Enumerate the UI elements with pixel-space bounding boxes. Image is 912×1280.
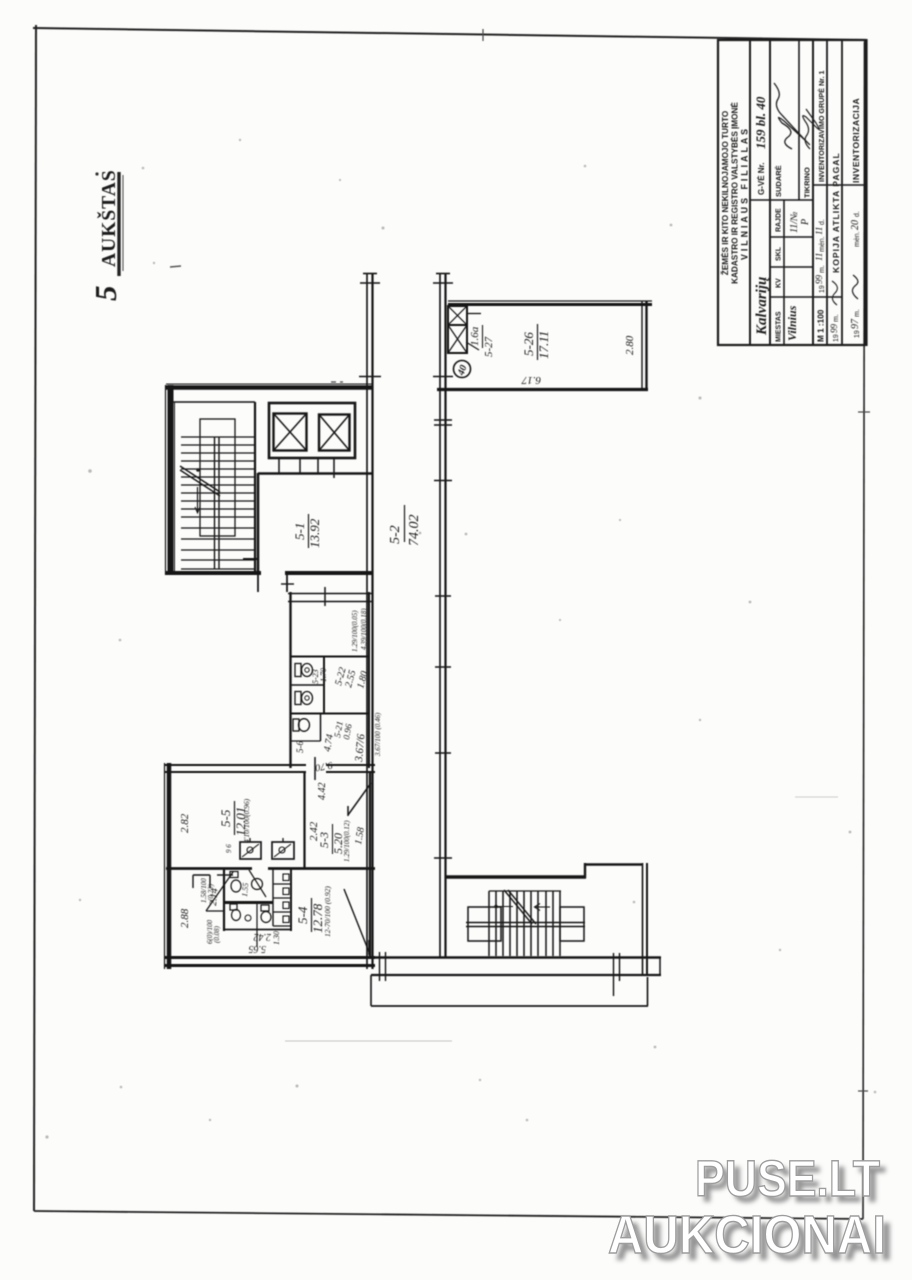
svg-text:5-3: 5-3 bbox=[317, 832, 331, 848]
svg-text:1.70: 1.70 bbox=[319, 668, 328, 682]
svg-text:4.39/100(0.18): 4.39/100(0.18) bbox=[360, 608, 368, 650]
svg-text:5-5: 5-5 bbox=[218, 809, 233, 827]
svg-text:1.55: 1.55 bbox=[240, 882, 250, 897]
svg-text:ŽEMĖS IR KITO NEKILNOJAMOJO TU: ŽEMĖS IR KITO NEKILNOJAMOJO TURTO bbox=[719, 110, 730, 275]
svg-text:2.88: 2.88 bbox=[179, 908, 191, 928]
svg-text:9 6: 9 6 bbox=[225, 844, 233, 853]
svg-text:2.42: 2.42 bbox=[254, 931, 272, 942]
svg-text:11: 11 bbox=[814, 227, 824, 235]
svg-text:d.: d. bbox=[854, 211, 861, 217]
svg-text:17.11: 17.11 bbox=[536, 331, 551, 359]
svg-text:5.65: 5.65 bbox=[249, 943, 267, 954]
svg-text:2.82: 2.82 bbox=[179, 813, 191, 833]
svg-text:KV: KV bbox=[776, 278, 783, 288]
svg-text:19: 19 bbox=[854, 330, 861, 338]
svg-text:1.30: 1.30 bbox=[272, 931, 281, 945]
svg-text:mėn.: mėn. bbox=[819, 236, 826, 252]
svg-text:SKL: SKL bbox=[776, 246, 783, 261]
svg-text:2.14: 2.14 bbox=[208, 888, 220, 906]
svg-text:KADASTRO IR REGISTRO VALSTYBĖS: KADASTRO IR REGISTRO VALSTYBĖS ĮMONĖ bbox=[730, 102, 740, 284]
svg-text:VILNIAUS FILIALAS: VILNIAUS FILIALAS bbox=[740, 126, 750, 260]
svg-text:INVENTORIZAVIMO GRUPĖ Nr. 1: INVENTORIZAVIMO GRUPĖ Nr. 1 bbox=[817, 70, 826, 182]
svg-text:5-27: 5-27 bbox=[483, 336, 495, 357]
svg-text:2.80: 2.80 bbox=[624, 335, 636, 355]
svg-text:1.29/100(0.12): 1.29/100(0.12) bbox=[343, 820, 351, 862]
svg-text:P: P bbox=[800, 219, 811, 226]
svg-text:m.: m. bbox=[833, 314, 840, 322]
svg-text:TIKRINO: TIKRINO bbox=[803, 167, 812, 198]
svg-text:4'10/100(0.96): 4'10/100(0.96) bbox=[242, 798, 251, 843]
svg-text:4.42: 4.42 bbox=[317, 783, 328, 801]
svg-text:5-1: 5-1 bbox=[292, 523, 307, 540]
svg-text:5-4: 5-4 bbox=[295, 906, 310, 924]
svg-text:5-2: 5-2 bbox=[388, 525, 403, 544]
svg-text:1.29/100(0.05): 1.29/100(0.05) bbox=[351, 610, 359, 652]
svg-text:5-26: 5-26 bbox=[521, 332, 536, 356]
svg-text:m.: m. bbox=[819, 265, 826, 273]
svg-text:3.67/6: 3.67/6 bbox=[353, 733, 368, 763]
svg-text:AUKŠTAS: AUKŠTAS bbox=[98, 169, 120, 267]
svg-text:5: 5 bbox=[88, 286, 123, 302]
svg-text:d.: d. bbox=[819, 219, 826, 225]
svg-text:Vilnius: Vilnius bbox=[785, 305, 799, 341]
svg-text:(0.08): (0.08) bbox=[213, 925, 221, 943]
svg-text:20: 20 bbox=[850, 220, 861, 230]
svg-text:RAJDE: RAJDE bbox=[776, 208, 783, 232]
svg-text:INVENTORIZACIJA: INVENTORIZACIJA bbox=[851, 98, 861, 183]
svg-text:Kalvarijų: Kalvarijų bbox=[754, 277, 770, 336]
svg-text:AUKCIONAI: AUKCIONAI bbox=[608, 1205, 886, 1265]
svg-text:3.67/100 (0.46): 3.67/100 (0.46) bbox=[374, 712, 382, 757]
svg-text:M 1 :100: M 1 :100 bbox=[817, 309, 826, 342]
svg-text:74.02: 74.02 bbox=[407, 515, 422, 547]
svg-text:m.: m. bbox=[854, 309, 861, 317]
svg-text:11: 11 bbox=[814, 253, 824, 261]
svg-text:SUDARĖ: SUDARĖ bbox=[774, 165, 783, 197]
svg-text:12-70/100 (0.92): 12-70/100 (0.92) bbox=[323, 886, 332, 937]
svg-text:MIESTAS: MIESTAS bbox=[776, 311, 783, 342]
svg-text:1.6a: 1.6a bbox=[469, 326, 481, 346]
svg-text:6.17: 6.17 bbox=[521, 374, 541, 386]
svg-text:PUSE.LT: PUSE.LT bbox=[695, 1150, 880, 1207]
svg-text:5-6: 5-6 bbox=[295, 741, 305, 753]
svg-text:19: 19 bbox=[819, 285, 826, 293]
svg-text:19: 19 bbox=[833, 334, 840, 342]
svg-text:G-VĖ Nr.: G-VĖ Nr. bbox=[757, 163, 766, 195]
svg-text:KOPIJA ATLIKTA PAGAL: KOPIJA ATLIKTA PAGAL bbox=[831, 152, 841, 273]
svg-text:mėn.: mėn. bbox=[854, 231, 861, 247]
svg-text:97: 97 bbox=[850, 318, 861, 329]
svg-text:13.92: 13.92 bbox=[307, 518, 322, 548]
svg-text:11/№: 11/№ bbox=[789, 212, 800, 233]
svg-text:99: 99 bbox=[814, 275, 824, 285]
svg-text:99: 99 bbox=[829, 324, 839, 334]
svg-text:159 bl. 40: 159 bl. 40 bbox=[753, 96, 768, 149]
